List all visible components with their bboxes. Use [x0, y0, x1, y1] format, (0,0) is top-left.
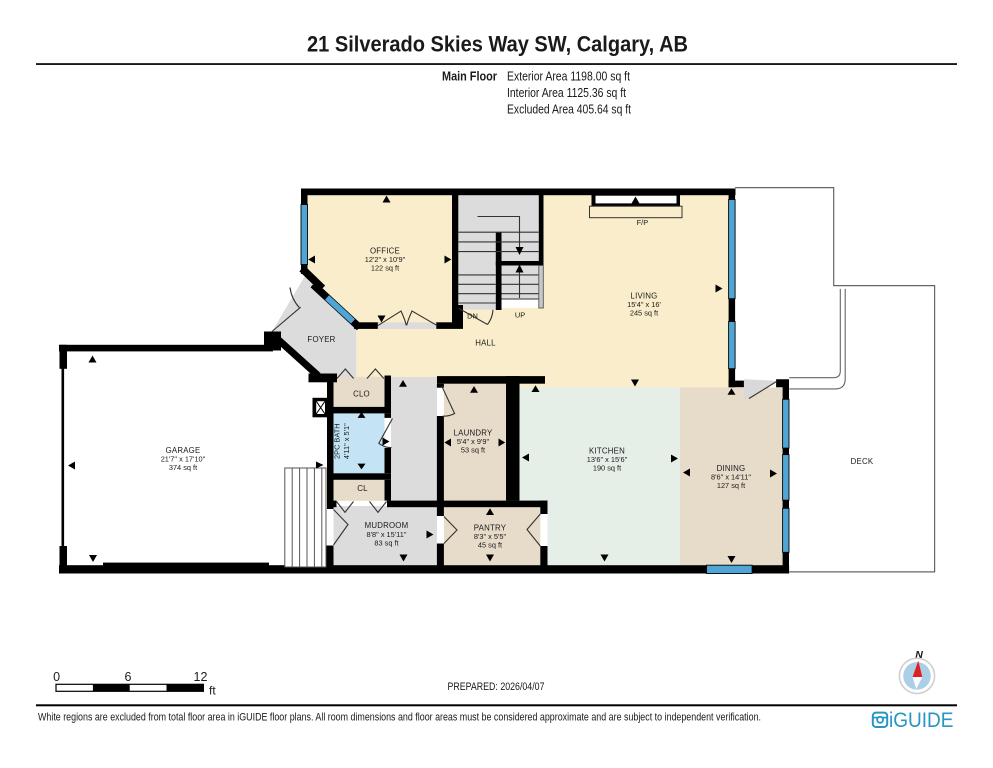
svg-text:12: 12	[194, 670, 208, 684]
svg-text:ft: ft	[209, 684, 216, 698]
svg-text:FOYER: FOYER	[307, 335, 335, 344]
svg-text:Main Floor: Main Floor	[442, 69, 497, 84]
svg-text:iGUIDE: iGUIDE	[889, 709, 954, 732]
svg-text:F/P: F/P	[637, 218, 649, 227]
svg-text:127 sq ft: 127 sq ft	[717, 481, 746, 490]
svg-text:53 sq ft: 53 sq ft	[461, 445, 486, 454]
svg-text:HALL: HALL	[475, 338, 496, 347]
svg-text:83 sq ft: 83 sq ft	[374, 538, 399, 547]
svg-text:PREPARED: 2026/04/07: PREPARED: 2026/04/07	[448, 681, 545, 693]
svg-text:KITCHEN: KITCHEN	[589, 446, 625, 455]
svg-text:Excluded Area 405.64 sq ft: Excluded Area 405.64 sq ft	[507, 102, 631, 117]
svg-text:6: 6	[125, 670, 132, 684]
svg-text:45 sq ft: 45 sq ft	[478, 541, 503, 550]
svg-text:White regions are excluded fro: White regions are excluded from total fl…	[38, 712, 761, 724]
svg-text:21 Silverado Skies Way SW, Cal: 21 Silverado Skies Way SW, Calgary, AB	[307, 32, 688, 57]
svg-text:245 sq ft: 245 sq ft	[630, 308, 659, 317]
svg-text:CL: CL	[357, 484, 368, 493]
svg-text:4'11" x 5'1": 4'11" x 5'1"	[342, 423, 351, 459]
svg-text:0: 0	[53, 670, 60, 684]
svg-text:190 sq ft: 190 sq ft	[593, 464, 622, 473]
svg-text:374 sq ft: 374 sq ft	[169, 463, 198, 472]
svg-text:CLO: CLO	[353, 389, 370, 398]
svg-text:DECK: DECK	[851, 457, 874, 466]
svg-text:122 sq ft: 122 sq ft	[371, 263, 400, 272]
svg-text:Interior Area 1125.36 sq ft: Interior Area 1125.36 sq ft	[507, 85, 626, 100]
svg-text:DN: DN	[467, 312, 478, 321]
svg-text:UP: UP	[515, 311, 525, 320]
svg-text:2PC BATH: 2PC BATH	[333, 423, 342, 459]
svg-text:Exterior Area 1198.00 sq ft: Exterior Area 1198.00 sq ft	[507, 69, 630, 84]
